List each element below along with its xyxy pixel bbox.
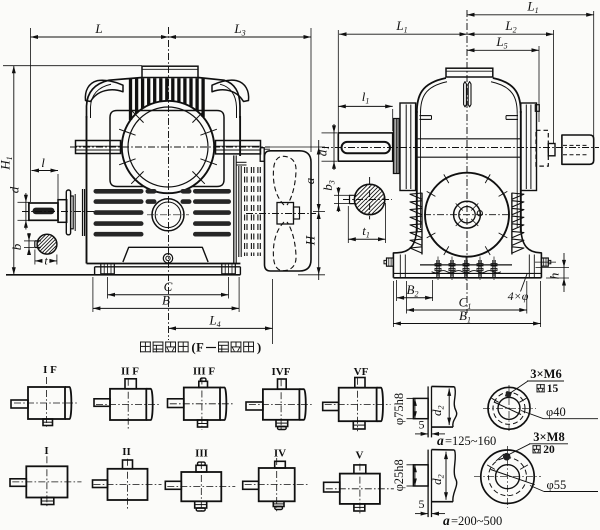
svg-text:h: h [547, 273, 562, 280]
svg-text:=125~160: =125~160 [445, 434, 496, 448]
svg-text:): ) [257, 340, 261, 355]
svg-text:20: 20 [543, 444, 555, 456]
svg-text:F: F [196, 341, 204, 355]
svg-text:III F: III F [193, 366, 216, 378]
svg-text:φ40: φ40 [546, 405, 566, 419]
svg-text:l: l [41, 155, 45, 170]
svg-text:II: II [122, 446, 131, 458]
svg-text:IVF: IVF [272, 366, 291, 378]
svg-text:15: 15 [547, 383, 559, 395]
svg-text:=200~500: =200~500 [451, 514, 502, 528]
svg-text:a: a [437, 433, 444, 448]
svg-text:3×M6: 3×M6 [530, 367, 561, 381]
svg-text:L: L [94, 21, 102, 36]
svg-text:φ75h8: φ75h8 [392, 393, 406, 425]
svg-text:d: d [7, 186, 22, 193]
svg-text:(: ( [191, 340, 195, 355]
svg-text:φ25h8: φ25h8 [392, 459, 406, 491]
svg-text:VF: VF [354, 366, 369, 378]
svg-text:5: 5 [419, 417, 425, 431]
svg-text:3×M8: 3×M8 [533, 430, 564, 444]
svg-text:I: I [44, 445, 48, 457]
svg-text:a: a [443, 513, 450, 528]
svg-text:B: B [162, 293, 170, 308]
svg-text:φ55: φ55 [547, 478, 567, 492]
svg-text:III: III [195, 448, 208, 460]
svg-text:4×φ: 4×φ [508, 289, 529, 303]
svg-text:II F: II F [121, 366, 139, 378]
svg-text:I F: I F [43, 364, 57, 376]
svg-text:5: 5 [419, 497, 425, 511]
svg-text:IV: IV [274, 448, 286, 460]
svg-text:b: b [9, 243, 24, 250]
svg-text:H: H [303, 235, 318, 246]
svg-text:a: a [302, 177, 317, 184]
svg-text:V: V [356, 450, 364, 462]
